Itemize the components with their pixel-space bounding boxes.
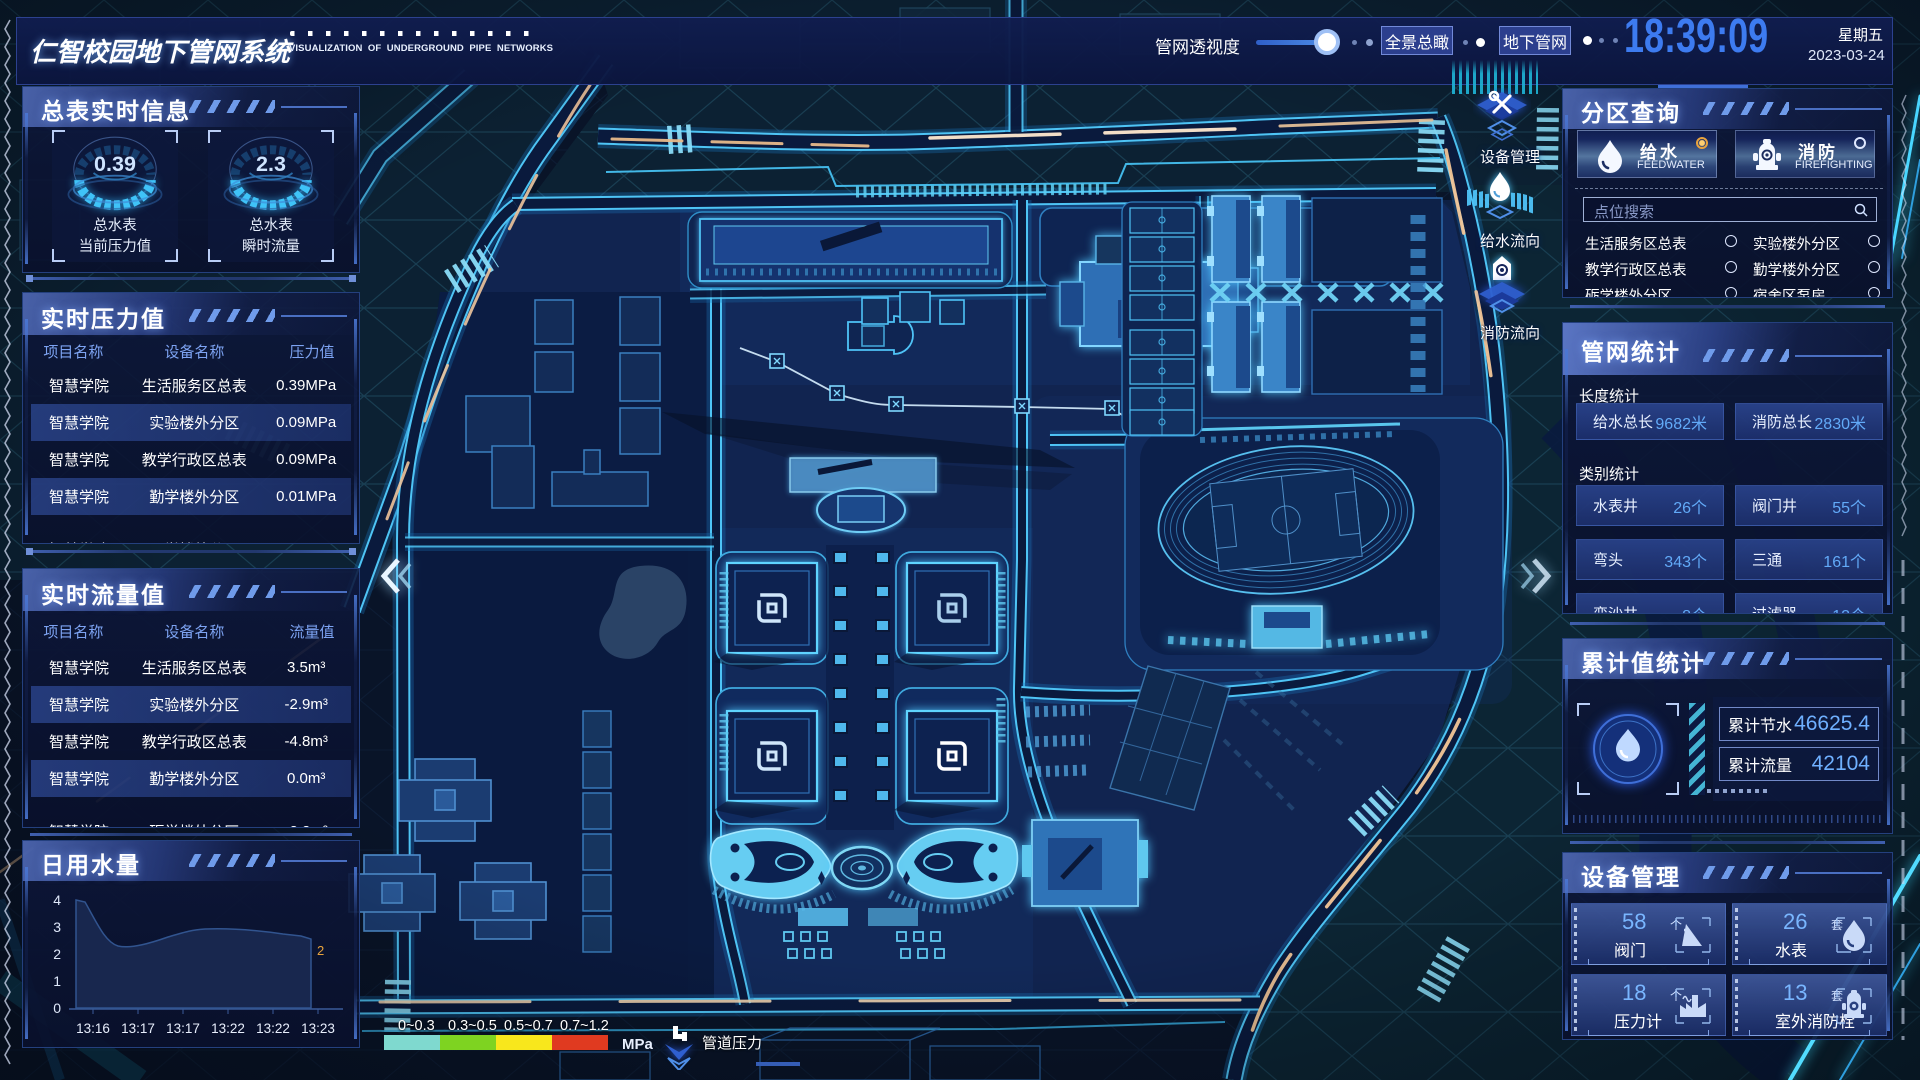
svg-text:13:22: 13:22: [211, 1021, 245, 1036]
svg-text:4: 4: [53, 892, 61, 908]
svg-text:13:17: 13:17: [166, 1021, 200, 1036]
svg-text:0: 0: [53, 1000, 61, 1016]
svg-text:13:23: 13:23: [301, 1021, 335, 1036]
svg-text:1: 1: [53, 973, 61, 989]
svg-text:13:17: 13:17: [121, 1021, 155, 1036]
svg-text:2: 2: [53, 946, 61, 962]
svg-text:3: 3: [53, 919, 61, 935]
svg-text:0.39: 0.39: [94, 152, 136, 176]
svg-text:2: 2: [317, 943, 324, 958]
svg-text:13:16: 13:16: [76, 1021, 110, 1036]
svg-text:2.3: 2.3: [256, 152, 286, 176]
svg-text:13:22: 13:22: [256, 1021, 290, 1036]
